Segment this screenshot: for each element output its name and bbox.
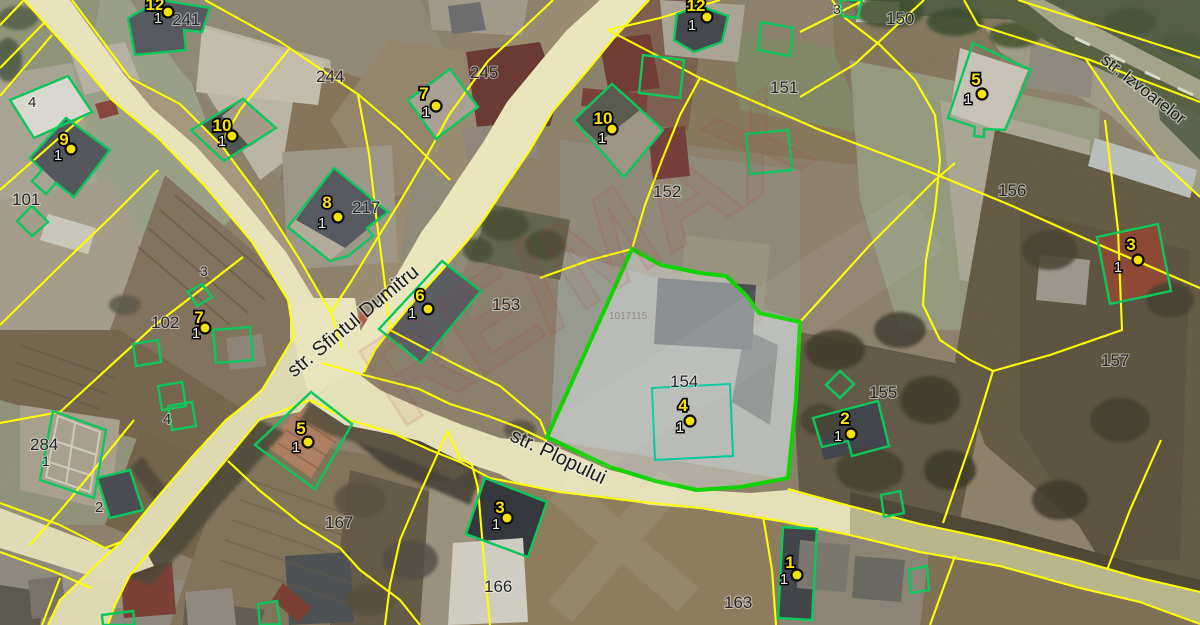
svg-text:8: 8 [322, 193, 331, 212]
svg-text:156: 156 [998, 181, 1026, 200]
svg-text:241: 241 [172, 10, 200, 29]
svg-text:1: 1 [834, 428, 842, 445]
svg-text:1: 1 [780, 571, 788, 588]
svg-text:1: 1 [785, 553, 794, 572]
svg-text:1: 1 [42, 453, 50, 469]
svg-text:1: 1 [292, 439, 300, 456]
svg-text:1: 1 [964, 91, 972, 108]
svg-text:1: 1 [318, 215, 326, 232]
svg-text:1: 1 [1114, 259, 1122, 276]
svg-text:152: 152 [653, 182, 681, 201]
svg-text:1017115: 1017115 [609, 311, 648, 322]
svg-text:167: 167 [325, 513, 353, 532]
svg-text:154: 154 [670, 372, 698, 391]
svg-text:5: 5 [971, 70, 980, 89]
svg-text:4: 4 [28, 94, 36, 111]
svg-text:2: 2 [840, 409, 849, 428]
svg-text:1: 1 [422, 104, 430, 121]
svg-text:1: 1 [492, 516, 500, 533]
svg-text:5: 5 [296, 419, 305, 438]
svg-text:7: 7 [419, 84, 428, 103]
svg-text:1: 1 [408, 305, 416, 322]
svg-text:1: 1 [598, 130, 606, 147]
svg-text:4: 4 [163, 411, 171, 428]
svg-text:3: 3 [200, 263, 208, 279]
svg-text:155: 155 [869, 383, 897, 402]
svg-text:1: 1 [688, 17, 696, 34]
svg-text:166: 166 [484, 577, 512, 596]
svg-text:153: 153 [492, 295, 520, 314]
svg-text:1: 1 [54, 147, 62, 164]
svg-text:245: 245 [470, 63, 498, 82]
svg-text:6: 6 [415, 286, 424, 305]
svg-text:3: 3 [833, 1, 841, 17]
svg-text:2: 2 [95, 499, 103, 516]
svg-text:3: 3 [1126, 235, 1135, 254]
svg-text:1: 1 [154, 10, 162, 27]
svg-text:102: 102 [151, 313, 179, 332]
svg-text:1: 1 [218, 133, 226, 150]
svg-text:244: 244 [316, 67, 344, 86]
svg-text:163: 163 [724, 593, 752, 612]
svg-text:217: 217 [352, 198, 380, 217]
svg-text:284: 284 [30, 435, 58, 454]
svg-text:151: 151 [770, 78, 798, 97]
svg-text:4: 4 [678, 396, 688, 415]
svg-text:150: 150 [886, 9, 914, 28]
svg-text:1: 1 [676, 419, 684, 436]
svg-text:101: 101 [12, 190, 40, 209]
svg-text:157: 157 [1101, 351, 1129, 370]
